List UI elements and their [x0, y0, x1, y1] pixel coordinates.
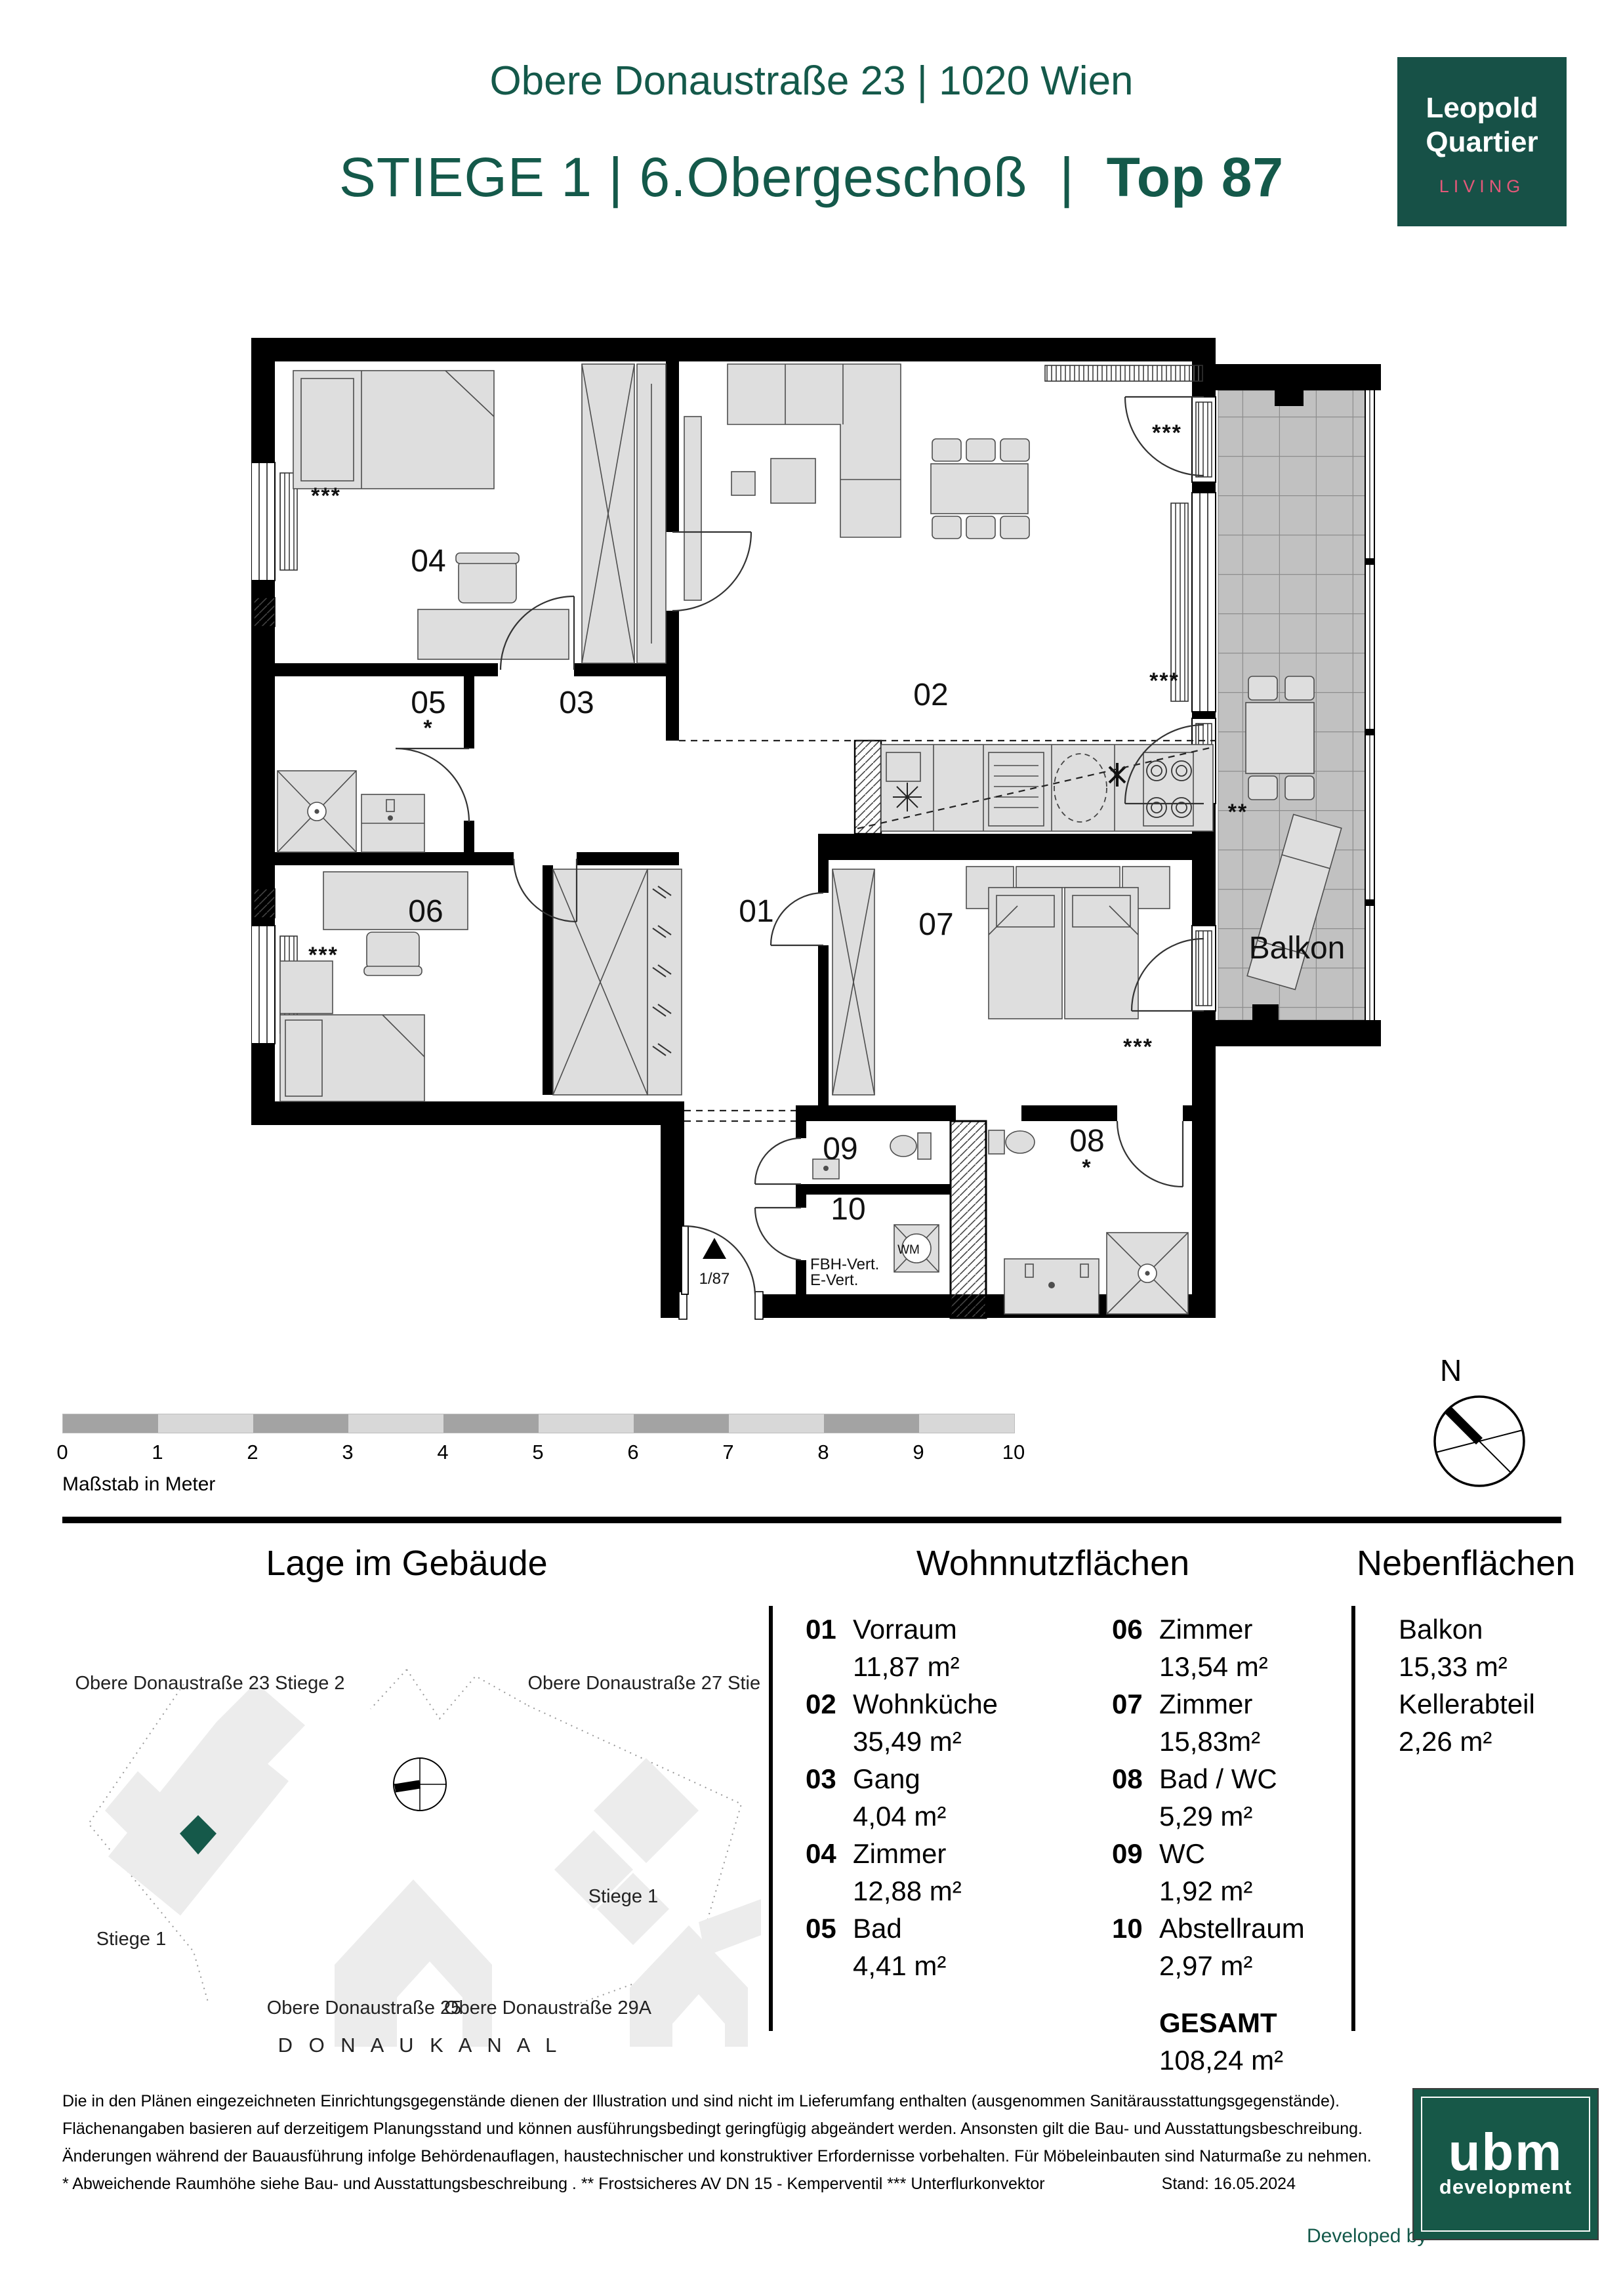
- site-label-25: Obere Donaustraße 25: [267, 1998, 462, 2019]
- neben-item-name: Balkon: [1399, 1610, 1595, 1648]
- list-item: 07Zimmer: [1112, 1685, 1361, 1723]
- list-item: 05Bad: [806, 1910, 1107, 1947]
- room-label-10: 10: [831, 1192, 865, 1227]
- list-item-area: 2,97 m²: [1112, 1947, 1361, 1984]
- star-balcony-door-1: ***: [1152, 420, 1182, 445]
- stiege-label: STIEGE 1: [339, 146, 592, 208]
- list-item: 03Gang: [806, 1760, 1107, 1797]
- list-item-area: 12,88 m²: [806, 1872, 1107, 1910]
- site-label-27: Obere Donaustraße 27 Stiege 2: [527, 1673, 761, 1694]
- column-divider: [769, 1606, 773, 2031]
- entry-arrow-icon: [703, 1238, 726, 1259]
- neben-list: Balkon 15,33 m² Kellerabteil 2,26 m²: [1399, 1610, 1595, 1760]
- list-item: 08Bad / WC: [1112, 1760, 1361, 1797]
- scale-tick: 8: [817, 1441, 829, 1464]
- stand-date: Stand: 16.05.2024: [1162, 2170, 1296, 2198]
- north-label: N: [1440, 1353, 1462, 1387]
- site-label-stiege1-right: Stiege 1: [588, 1886, 658, 1907]
- evert-label: E-Vert.: [810, 1271, 858, 1289]
- logo-subtitle: LIVING: [1397, 176, 1567, 197]
- wm-label: WM: [897, 1243, 920, 1257]
- neben-item-area: 2,26 m²: [1399, 1723, 1595, 1760]
- neben-title: Nebenflächen: [1357, 1543, 1561, 1584]
- room-label-03: 03: [559, 686, 594, 720]
- room-label-02: 02: [913, 678, 948, 712]
- scale-tick: 6: [627, 1441, 638, 1464]
- scale-tick: 10: [1002, 1441, 1025, 1464]
- star-08: *: [1082, 1155, 1092, 1180]
- site-label-23: Obere Donaustraße 23 Stiege 2: [75, 1673, 344, 1694]
- list-item-area: 5,29 m²: [1112, 1797, 1361, 1835]
- scale-bar: [62, 1414, 1015, 1433]
- fbh-label: FBH-Vert.: [810, 1256, 879, 1273]
- ubm-logo: ubm development: [1414, 2089, 1597, 2239]
- disclaimer-line: Die in den Plänen eingezeichneten Einric…: [62, 2087, 1296, 2115]
- room-label-08: 08: [1069, 1124, 1104, 1158]
- star-balcony-door-2: ***: [1149, 668, 1180, 693]
- list-item-area: 4,04 m²: [806, 1797, 1107, 1835]
- developed-by-label: Developed by: [1307, 2225, 1427, 2247]
- pipe-separator: |: [608, 146, 623, 208]
- list-item: 04Zimmer: [806, 1835, 1107, 1872]
- list-item-area: 15,83m²: [1112, 1723, 1361, 1760]
- address-line: Obere Donaustraße 23 | 1020 Wien: [0, 58, 1623, 104]
- room-label-09: 09: [823, 1132, 857, 1166]
- star-kitchen-window: **: [1228, 800, 1248, 825]
- site-compass: [394, 1758, 446, 1811]
- wall-pier-hatch: [254, 598, 275, 626]
- entry-number: 1/87: [699, 1270, 730, 1288]
- star-window-06: ***: [308, 943, 339, 968]
- floor-plan-drawing: 04 05 * 03 02 06 01 07 09 08 * 10 Balkon…: [251, 338, 1381, 1322]
- ubm-wordmark: ubm: [1422, 2129, 1589, 2175]
- disclaimer-line: Flächenangaben basieren auf derzeitigem …: [62, 2115, 1296, 2142]
- star-balcony-door-3: ***: [1123, 1035, 1153, 1059]
- room-label-04: 04: [411, 544, 445, 579]
- compass-needle: [1448, 1410, 1479, 1441]
- unit-title: STIEGE 1 | 6.Obergeschoß | Top 87: [0, 146, 1623, 209]
- list-item-area: 4,41 m²: [806, 1947, 1107, 1984]
- site-label-stiege1-left: Stiege 1: [96, 1929, 166, 1950]
- disclaimer-line: Änderungen während der Bauausführung inf…: [62, 2142, 1296, 2170]
- scale-tick: 3: [342, 1441, 353, 1464]
- areas-title: Wohnnutzflächen: [791, 1543, 1315, 1584]
- list-item: 02Wohnküche: [806, 1685, 1107, 1723]
- scale-tick: 0: [56, 1441, 68, 1464]
- wall-pier-hatch: [254, 889, 275, 918]
- room-label-06: 06: [408, 894, 443, 929]
- shaft-hatch: [951, 1121, 986, 1318]
- room-label-01: 01: [739, 894, 773, 929]
- total-label: GESAMT: [1112, 2004, 1361, 2041]
- area-list-col1: 01Vorraum 11,87 m² 02Wohnküche 35,49 m² …: [806, 1610, 1107, 1984]
- star-05: *: [423, 716, 433, 741]
- scale-caption: Maßstab in Meter: [62, 1473, 215, 1496]
- donaukanal-label: D O N A U K A N A L: [278, 2034, 562, 2053]
- list-item-area: 1,92 m²: [1112, 1872, 1361, 1910]
- pipe-separator: |: [1059, 146, 1075, 208]
- scale-tick: 5: [532, 1441, 543, 1464]
- section-divider: [62, 1517, 1561, 1523]
- scale-tick: 2: [247, 1441, 258, 1464]
- list-item: 09WC: [1112, 1835, 1361, 1872]
- scale-tick: 7: [722, 1441, 733, 1464]
- scale-tick: 4: [437, 1441, 448, 1464]
- balkon-label: Balkon: [1249, 931, 1346, 966]
- kitchen-shaft-hatch: [855, 741, 881, 834]
- neben-item-area: 15,33 m²: [1399, 1648, 1595, 1685]
- logo-line1: Leopold: [1426, 92, 1538, 124]
- ubm-sub: development: [1422, 2175, 1589, 2199]
- scale-tick: 9: [913, 1441, 924, 1464]
- top-number: Top 87: [1107, 146, 1284, 208]
- list-item-area: 13,54 m²: [1112, 1648, 1361, 1685]
- list-item: 10Abstellraum: [1112, 1910, 1361, 1947]
- site-label-29a: Obere Donaustraße 29A: [444, 1998, 652, 2019]
- room-label-07: 07: [918, 907, 953, 942]
- list-item-area: 35,49 m²: [806, 1723, 1107, 1760]
- site-plan-title: Lage im Gebäude: [144, 1543, 669, 1584]
- floor-plan-sheet: Obere Donaustraße 23 | 1020 Wien STIEGE …: [0, 0, 1623, 2296]
- area-list-col2: 06Zimmer 13,54 m² 07Zimmer 15,83m² 08Bad…: [1112, 1610, 1361, 2079]
- total-value: 108,24 m²: [1112, 2041, 1361, 2079]
- list-item: 01Vorraum: [806, 1610, 1107, 1648]
- north-compass: N: [1404, 1336, 1555, 1507]
- star-window-04: ***: [311, 483, 341, 508]
- site-plan: Obere Donaustraße 23 Stiege 2 Obere Dona…: [39, 1594, 761, 2053]
- disclaimer-line: * Abweichende Raumhöhe siehe Bau- und Au…: [62, 2170, 1045, 2198]
- logo-line2: Quartier: [1426, 126, 1538, 158]
- list-item-area: 11,87 m²: [806, 1648, 1107, 1685]
- floor-label: 6.Obergeschoß: [639, 146, 1027, 208]
- scale-tick: 1: [152, 1441, 163, 1464]
- neben-item-name: Kellerabteil: [1399, 1685, 1595, 1723]
- list-item: 06Zimmer: [1112, 1610, 1361, 1648]
- leopold-quartier-logo: Leopold Quartier LIVING: [1397, 57, 1567, 226]
- footer-disclaimer: Die in den Plänen eingezeichneten Einric…: [62, 2087, 1296, 2198]
